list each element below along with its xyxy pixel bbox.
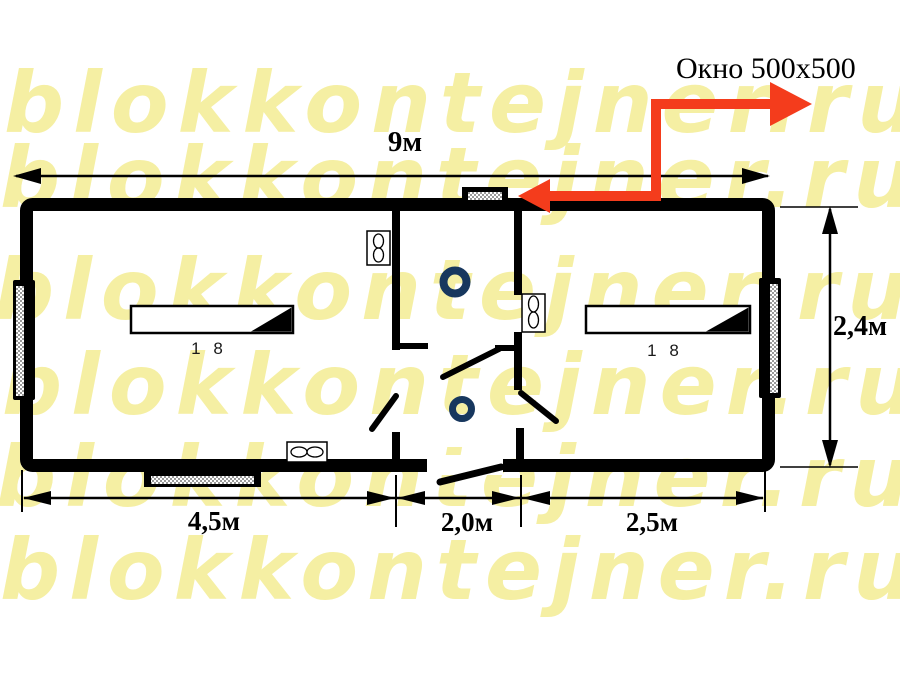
fan-icon-right-room xyxy=(522,294,545,332)
left-window-icon xyxy=(16,286,24,396)
arrowhead-left-icon xyxy=(13,168,41,184)
bottom-window-icon xyxy=(151,476,254,484)
fan-icon-left-room xyxy=(367,231,390,265)
top-window-icon xyxy=(468,192,502,200)
ring-icon-bottom xyxy=(453,400,472,419)
floorplan-drawing xyxy=(0,0,900,675)
radiator-right-label: 1 8 xyxy=(615,341,715,361)
window-callout-label: Окно 500x500 xyxy=(676,52,856,86)
arrowhead-up-icon xyxy=(822,206,838,234)
ring-icon-top xyxy=(444,271,467,294)
right-room-door-leaf xyxy=(521,393,556,421)
partition-walls xyxy=(392,205,524,465)
left-room-door-leaf xyxy=(372,396,396,429)
dimension-label-right-room: 2,5м xyxy=(602,507,702,538)
dimension-label-total-length: 9м xyxy=(370,126,440,159)
fan-icon-bottom-wall xyxy=(287,442,327,462)
radiator-left-label: 1 8 xyxy=(159,339,259,359)
middle-door-leaf xyxy=(443,349,499,377)
window-callout-arrow xyxy=(518,82,812,213)
red-arrowhead-right-icon xyxy=(770,82,812,126)
floorplan-canvas: blokkontejner.ru blokkontejner.ru blokko… xyxy=(0,0,900,675)
arrowhead-right-icon xyxy=(742,168,770,184)
arrowhead-down-icon xyxy=(822,440,838,468)
dimension-label-left-room: 4,5м xyxy=(164,506,264,537)
right-window-icon xyxy=(770,284,778,393)
dimension-label-height: 2,4м xyxy=(833,311,887,343)
radiators xyxy=(131,306,750,333)
dimension-label-middle-room: 2,0м xyxy=(417,507,517,538)
